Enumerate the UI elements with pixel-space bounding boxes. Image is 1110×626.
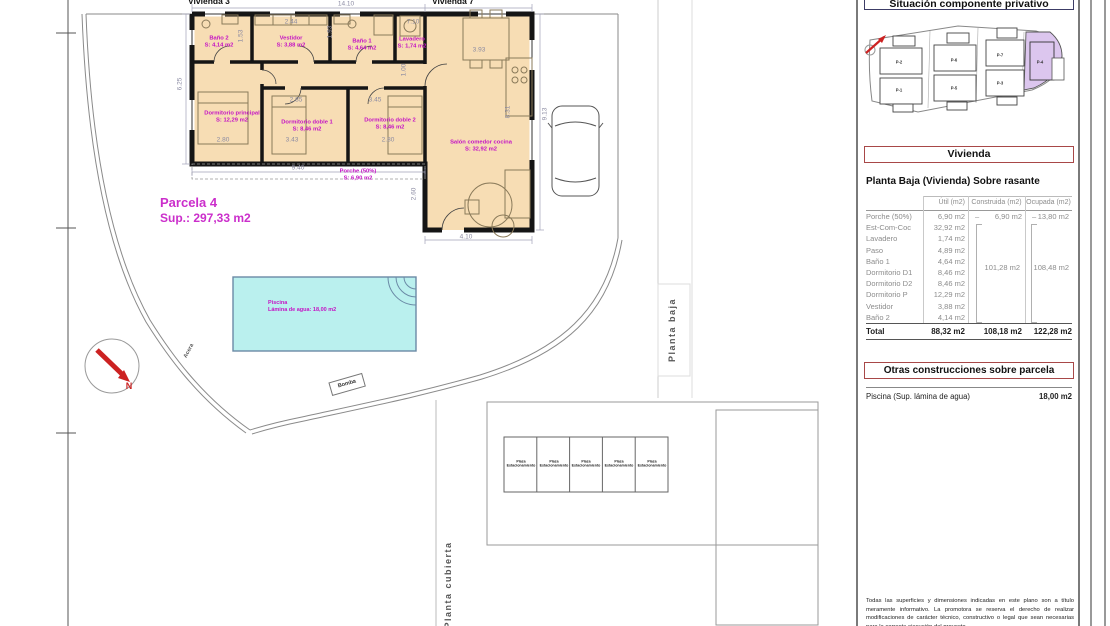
- room-label: Salón comedor cocinaS: 32,92 m2: [450, 139, 512, 152]
- parking-stall-label: PlazaEstacionamiento: [605, 460, 634, 469]
- col-header-util: Útil (m2): [923, 196, 968, 210]
- dim-label: 8.31: [505, 106, 512, 119]
- table-total-row: Total 88,32 m2 108,18 m2 122,28 m2: [866, 323, 1072, 340]
- parking-stall-label: PlazaEstacionamiento: [507, 460, 536, 469]
- table-col-separator: [968, 196, 969, 323]
- surfaces-table: Útil (m2) Construida (m2) Ocupada (m2) P…: [866, 193, 1072, 340]
- plan-sheet: Vivienda 3 Vivienda 7 14.10 2.44 1.53 1.…: [0, 0, 1110, 626]
- pool-label: Piscina Lámina de agua: 18,00 m2: [268, 300, 336, 313]
- sitemap-parcel-label: P-2: [896, 60, 903, 65]
- table-row: Baño 24,14 m2: [866, 312, 1072, 323]
- sitemap-parcel-label: P-7: [997, 53, 1004, 58]
- sitemap-parcel-label: P-4: [1037, 60, 1044, 65]
- parking-stall-label: PlazaEstacionamiento: [572, 460, 601, 469]
- north-label: N: [126, 381, 133, 391]
- construida-bracket: [976, 224, 982, 323]
- dim-label: 2.80: [382, 137, 395, 144]
- vivienda-7-label: Vivienda 7: [432, 0, 474, 6]
- room-label: LavaderoS: 1,74 m2: [398, 36, 427, 49]
- section-title: Planta Baja (Vivienda) Sobre rasante: [866, 176, 1040, 187]
- parking-stall-label: PlazaEstacionamiento: [638, 460, 667, 469]
- dim-label: 4.10: [460, 234, 473, 241]
- table-col-separator: [1025, 196, 1026, 323]
- situacion-map: [869, 26, 1064, 112]
- disclaimer-text: Todas las superficies y dimensiones indi…: [866, 597, 1074, 626]
- car: [548, 106, 603, 196]
- situacion-header: Situación componente privativo: [864, 0, 1074, 10]
- table-row: Dormitorio P12,29 m2: [866, 289, 1072, 300]
- otras-rule: [866, 387, 1072, 388]
- room-label: Dormitorio doble 2S: 8,46 m2: [364, 117, 416, 130]
- table-row: Lavadero1,74 m2: [866, 233, 1072, 244]
- dim-label: 2.60: [411, 188, 418, 201]
- dim-label: 14.10: [338, 1, 354, 8]
- sitemap-parcel-label: P-5: [951, 86, 958, 91]
- dim-label: 1.53: [238, 30, 245, 43]
- table-row: Dormitorio D28,46 m2: [866, 278, 1072, 289]
- planta-baja-title: Planta baja: [667, 298, 677, 362]
- room-label: VestidorS: 3,88 m2: [277, 35, 306, 48]
- dim-label: 3.93: [473, 47, 486, 54]
- pool: [233, 277, 416, 351]
- planta-cubierta-title: Planta cubierta: [443, 541, 453, 626]
- dim-label: 2.85: [290, 97, 303, 104]
- parking-stall-label: PlazaEstacionamiento: [540, 460, 569, 469]
- table-rule: [923, 196, 1072, 197]
- dim-label: 9.13: [542, 108, 549, 121]
- dim-label: 7.10: [407, 19, 420, 26]
- dim-label: 2.44: [285, 19, 298, 26]
- parcela-label: Parcela 4 Sup.: 297,33 m2: [160, 195, 251, 226]
- sitemap-parcel-label: P-6: [951, 58, 958, 63]
- ocupada-bracket: [1031, 224, 1037, 323]
- col-header-construida: Construida (m2): [968, 196, 1025, 210]
- room-label: Baño 2S: 4,14 m2: [205, 35, 234, 48]
- room-label: Baño 1S: 4,64 m2: [348, 38, 377, 51]
- vivienda-3-label: Vivienda 3: [188, 0, 230, 6]
- room-label: Dormitorio doble 1S: 8,46 m2: [281, 119, 333, 132]
- table-row: Est-Com-Coc32,92 m2: [866, 222, 1072, 233]
- room-label: Porche (50%)S: 6,90 m2: [340, 168, 377, 181]
- room-label: Dormitorio principalS: 12,29 m2: [204, 110, 259, 123]
- ocupada-group-value: 108,48 m2: [1033, 263, 1069, 272]
- vivienda-header: Vivienda: [864, 146, 1074, 163]
- table-row: Paso4,89 m2: [866, 245, 1072, 256]
- dim-label: 1.00: [401, 64, 408, 77]
- roof-plan: [487, 402, 818, 625]
- otras-row: Piscina (Sup. lámina de agua) 18,00 m2: [866, 392, 1072, 401]
- dim-label: 9.40: [292, 165, 305, 172]
- table-col-separator: [923, 196, 924, 323]
- dim-label: 6.25: [177, 78, 184, 91]
- sitemap-parcel-label: P-1: [896, 88, 903, 93]
- sitemap-parcel-label: P-3: [997, 81, 1004, 86]
- dim-label: 1.93: [327, 26, 334, 39]
- dim-label: 3.43: [286, 137, 299, 144]
- dim-label: 3.45: [369, 97, 382, 104]
- otras-header: Otras construcciones sobre parcela: [864, 362, 1074, 379]
- dim-label: 2.80: [217, 137, 230, 144]
- construida-group-value: 101,28 m2: [976, 263, 1020, 272]
- table-header-row: Útil (m2) Construida (m2) Ocupada (m2): [866, 196, 1072, 211]
- table-row: Porche (50%) 6,90 m2 –6,90 m2 –13,80 m2: [866, 211, 1072, 222]
- col-header-ocupada: Ocupada (m2): [1025, 196, 1072, 210]
- table-row: Vestidor3,88 m2: [866, 301, 1072, 312]
